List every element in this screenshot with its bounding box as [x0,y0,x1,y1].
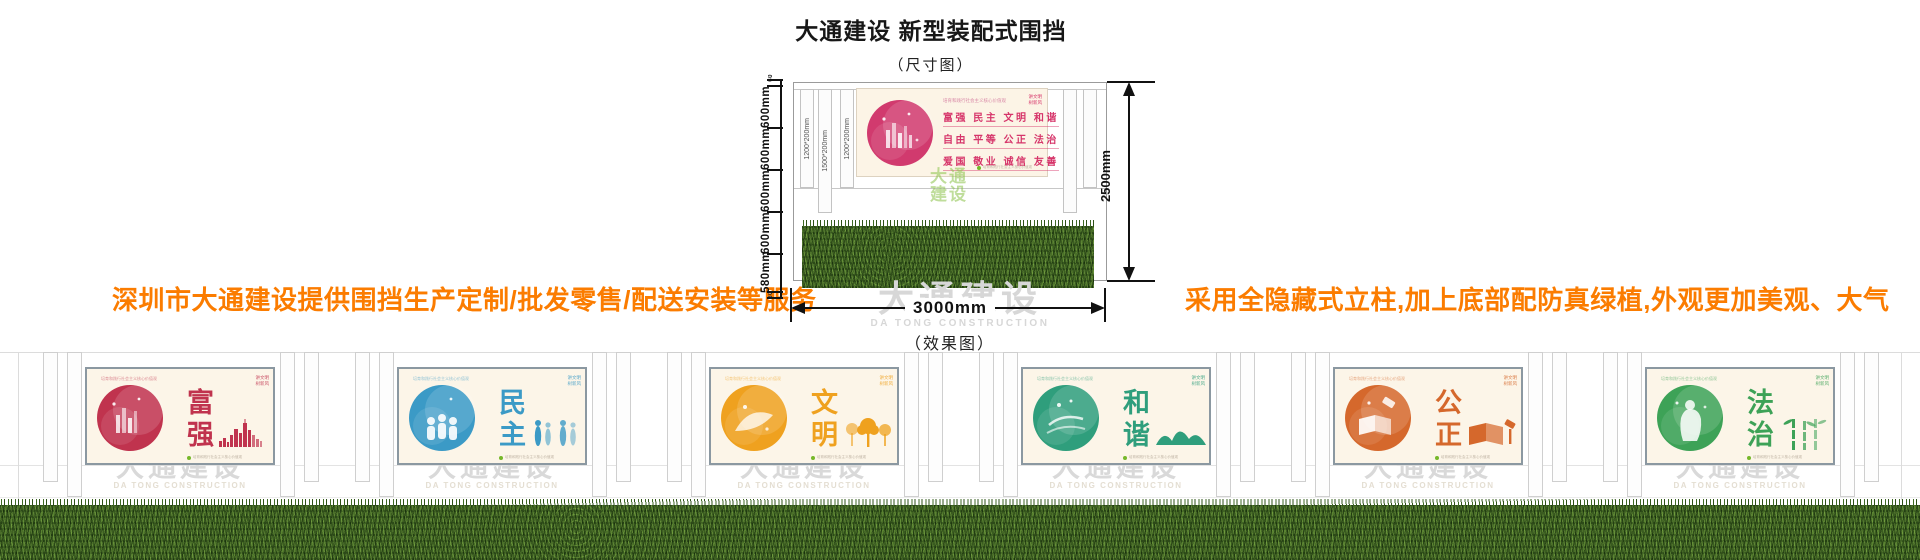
values-row: 自由 平等 公正 法治 [943,131,1059,149]
value-word: 民主 [491,388,530,454]
fence-bay-minzhu: 大通建设DA TONG CONSTRUCTION 培育和践行社会主义核心价值观 … [342,345,642,505]
hidden-post [1063,89,1077,213]
panel-corner-slogan: 讲文明树新风 [256,375,270,388]
green-dot-icon [1747,456,1751,460]
corner-line: 树新风 [1029,100,1043,106]
hidden-post [667,352,682,482]
hidden-post: 1200*200mm [800,89,814,188]
panel-corner-slogan: 讲文明树新风 [1816,375,1830,388]
billboard-panel: 培育和践行社会主义核心价值观 讲文明 树新风 富强 民主 文明 和谐 自由 平等… [856,88,1048,177]
panel-footnote: 培育和践行社会主义核心价值观 [1123,455,1178,460]
green-dot-icon [811,456,815,460]
value-word: 和谐 [1115,388,1154,454]
fence-bay-wenming: 大通建设DA TONG CONSTRUCTION 培育和践行社会主义核心价值观 … [654,345,954,505]
green-dot-icon [187,456,191,460]
paper-cut-circle-icon [1345,385,1411,451]
watermark-en: DA TONG CONSTRUCTION [709,481,899,490]
hidden-post [979,352,994,482]
value-word: 文明 [803,388,842,454]
ruler-label: 600mm [760,172,772,212]
hidden-post: 1500*200mm [818,89,832,213]
hidden-post [592,352,607,497]
post-size-label: 1500*200mm [822,130,829,172]
hidden-post [1315,352,1330,497]
paper-cut-circle-icon [1657,385,1723,451]
panel-footnote: 培育和践行社会主义核心价值观 [1435,455,1490,460]
hidden-post [1552,352,1567,482]
value-panel: 培育和践行社会主义核心价值观 讲文明树新风 法治 培育和践行社会主义核心价值观 [1645,367,1835,465]
footnote-text: 培育和践行社会主义核心价值观 [983,165,1032,170]
hidden-post [928,352,943,482]
green-dot-icon [977,166,981,170]
fence-bay-gongzheng: 大通建设DA TONG CONSTRUCTION 培育和践行社会主义核心价值观 … [1278,345,1578,505]
hidden-post [1216,352,1231,497]
hidden-post [1240,352,1255,482]
bamboo-icon [1778,417,1830,451]
hidden-post [355,352,370,482]
watermark-en: DA TONG CONSTRUCTION [85,481,275,490]
panel-header-line: 培育和践行社会主义核心价值观 [1661,376,1805,382]
value-word: 富强 [179,388,218,454]
panel-header-line: 培育和践行社会主义核心价值观 [1349,376,1493,382]
corner-line: 树新风 [568,381,582,387]
green-watermark: 大通 建设 [930,168,968,204]
book-gavel-icon [1466,417,1518,447]
panel-footnote: 培育和践行社会主义核心价值观 [1747,455,1802,460]
panel-corner-slogan: 讲文明树新风 [1504,375,1518,388]
hidden-post: 1200*200mm [840,89,854,188]
watermark-line: 大通 [930,168,968,186]
height-dimension-label: 2500mm [1098,150,1113,202]
footnote-text: 培育和践行社会主义核心价值观 [193,455,242,460]
billboard-corner-slogan: 讲文明 树新风 [1029,94,1043,107]
post-size-label: 1200*200mm [804,118,811,160]
hidden-post [1864,352,1879,482]
hidden-post [1603,352,1618,482]
hidden-post [379,352,394,497]
billboard-header-line: 培育和践行社会主义核心价值观 [943,98,1006,104]
trees-icon [842,417,894,447]
corner-line: 树新风 [880,381,894,387]
panel-corner-slogan: 讲文明树新风 [568,375,582,388]
ruler-label: 600mm [760,130,772,170]
ruler-line [780,80,782,298]
effect-render: 大通建设DA TONG CONSTRUCTION 培育和践行社会主义核心价值观 … [0,345,1920,560]
panel-corner-slogan: 讲文明树新风 [1192,375,1206,388]
panel-header-line: 培育和践行社会主义核心价值观 [101,376,245,382]
value-word: 法治 [1739,388,1778,454]
panel-header-line: 培育和践行社会主义核心价值观 [413,376,557,382]
hidden-post [280,352,295,497]
fence-bay-fuqiang: 大通建设DA TONG CONSTRUCTION 培育和践行社会主义核心价值观 … [30,345,330,505]
values-row: 富强 民主 文明 和谐 [943,109,1059,127]
paper-cut-circle-icon [1033,385,1099,451]
green-dot-icon [1435,456,1439,460]
mountains-icon [1154,417,1206,447]
value-word: 公正 [1427,388,1466,454]
hidden-post [67,352,82,497]
fence-edge-line [18,352,19,500]
width-dimension-label: 3000mm [905,298,995,318]
watermark-en: DA TONG CONSTRUCTION [397,481,587,490]
corner-line: 树新风 [256,381,270,387]
panel-footnote: 培育和践行社会主义核心价值观 [499,455,554,460]
corner-line: 树新风 [1504,381,1518,387]
panel-corner-slogan: 讲文明树新风 [880,375,894,388]
artificial-hedge [0,505,1920,560]
billboard-footnote: 培育和践行社会主义核心价值观 [977,165,1032,170]
hidden-post [1840,352,1855,497]
footnote-text: 培育和践行社会主义核心价值观 [505,455,554,460]
post-size-label: 1200*200mm [844,118,851,160]
hidden-post [616,352,631,482]
fence-bay-fazhi: 大通建设DA TONG CONSTRUCTION 培育和践行社会主义核心价值观 … [1590,345,1890,505]
green-dot-icon [499,456,503,460]
height-dimension [1105,78,1161,286]
paper-cut-circle-icon [867,100,933,166]
corner-line: 树新风 [1192,381,1206,387]
panel-header-line: 培育和践行社会主义核心价值观 [725,376,869,382]
footnote-text: 培育和践行社会主义核心价值观 [1753,455,1802,460]
panel-footnote: 培育和践行社会主义核心价值观 [187,455,242,460]
ruler-label: 600mm [760,88,772,128]
footnote-text: 培育和践行社会主义核心价值观 [1441,455,1490,460]
value-panel: 培育和践行社会主义核心价值观 讲文明树新风 公正 培育和践行社会主义核心价值观 [1333,367,1523,465]
ruler-label: 580mm [760,255,772,293]
corner-line: 树新风 [1816,381,1830,387]
panel-footnote: 培育和践行社会主义核心价值观 [811,455,866,460]
hidden-post [1083,89,1097,188]
value-panel: 培育和践行社会主义核心价值观 讲文明树新风 民主 培育和践行社会主义核心价值观 [397,367,587,465]
value-panel: 培育和践行社会主义核心价值观 讲文明树新风 富强 培育和践行社会主义核心价值观 [85,367,275,465]
watermark-en: DA TONG CONSTRUCTION [1645,481,1835,490]
paper-cut-circle-icon [721,385,787,451]
value-panel: 培育和践行社会主义核心价值观 讲文明树新风 和谐 培育和践行社会主义核心价值观 [1021,367,1211,465]
people-figures-icon [530,417,582,447]
panel-header-line: 培育和践行社会主义核心价值观 [1037,376,1181,382]
footnote-text: 培育和践行社会主义核心价值观 [1129,455,1178,460]
ruler-label: 600mm [760,214,772,254]
city-skyline-icon [218,417,270,447]
hidden-post [43,352,58,482]
fence-edge-line [1901,352,1902,500]
green-dot-icon [1123,456,1127,460]
value-panel: 培育和践行社会主义核心价值观 讲文明树新风 文明 培育和践行社会主义核心价值观 [709,367,899,465]
ruler-label: 60 [768,74,774,82]
hidden-post [1291,352,1306,482]
fence-bay-hexie: 大通建设DA TONG CONSTRUCTION 培育和践行社会主义核心价值观 … [966,345,1266,505]
hidden-post [691,352,706,497]
hidden-post [904,352,919,497]
ruler-label: 80 [768,291,774,299]
watermark-en: DA TONG CONSTRUCTION [1021,481,1211,490]
footnote-text: 培育和践行社会主义核心价值观 [817,455,866,460]
height-dimension-arrow [1105,78,1161,286]
poster-canvas: 大通建设 新型装配式围挡 （尺寸图） 深圳市大通建设提供围挡生产定制/批发零售/… [0,0,1920,560]
hidden-post [1528,352,1543,497]
watermark-line: 建设 [930,186,968,204]
hidden-post [1003,352,1018,497]
hidden-post [304,352,319,482]
paper-cut-circle-icon [97,385,163,451]
hidden-post [1627,352,1642,497]
paper-cut-circle-icon [409,385,475,451]
watermark-en: DA TONG CONSTRUCTION [1333,481,1523,490]
dimension-diagram: 60 600mm 600mm 600mm 600mm 580mm 80 1200… [0,0,1920,360]
